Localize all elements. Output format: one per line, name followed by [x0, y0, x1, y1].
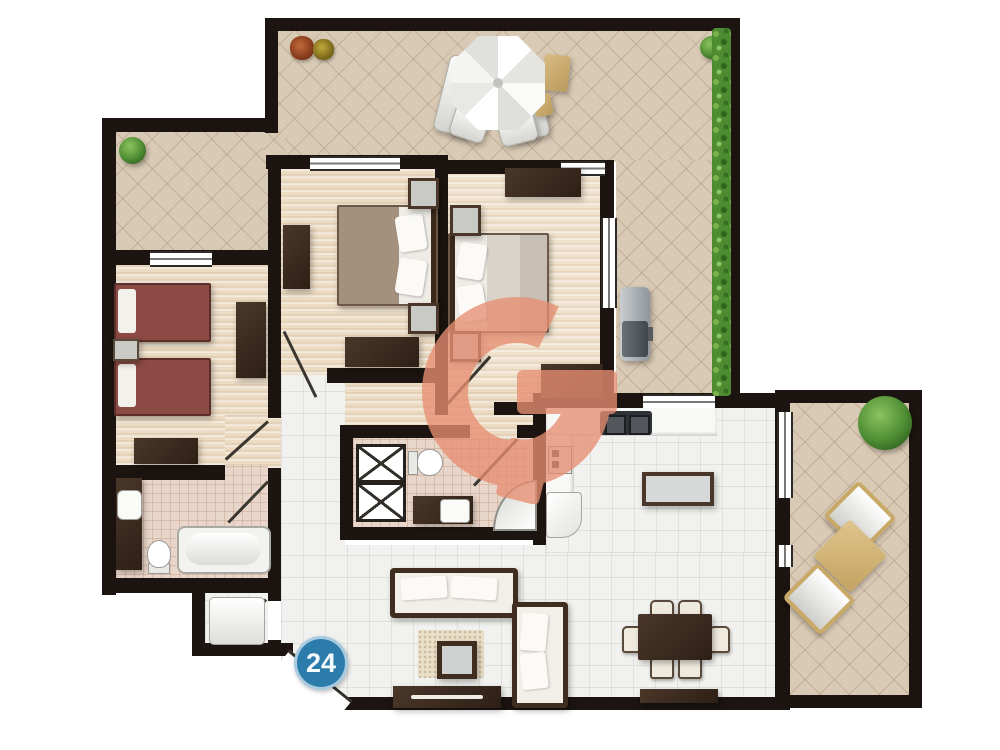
coffee-table-icon [437, 641, 477, 679]
burner-icon [629, 415, 650, 435]
wall-closet-right-top [268, 593, 281, 601]
wall-closet-right-bottom [268, 640, 281, 656]
sideboard-icon [640, 689, 718, 703]
wardrobe-icon [505, 168, 581, 197]
sofa-cushion-icon [450, 575, 497, 600]
bathtub-icon [177, 526, 271, 574]
dresser-icon [345, 337, 419, 367]
umbrella-icon [451, 36, 545, 130]
window-bedroom1 [310, 156, 400, 171]
pillow-icon [394, 213, 427, 253]
lobby-floor [225, 415, 281, 468]
wall-v1-upper [268, 157, 281, 418]
toilet-bowl-icon [147, 540, 171, 568]
nightstand-icon [450, 205, 481, 236]
unit-number-badge: 24 [294, 636, 348, 690]
pillow-icon [118, 364, 136, 407]
double-bed-icon [337, 205, 438, 306]
sofa-icon [390, 568, 518, 618]
bbq-body-icon [622, 321, 648, 357]
single-bed-icon [114, 358, 211, 416]
wall-left-terrace-top [102, 118, 278, 132]
nightstand-icon [408, 178, 439, 209]
window-living-right-2 [777, 545, 793, 567]
wall-terrace4-right [909, 390, 922, 708]
sofa-icon [512, 602, 568, 708]
window-living-right-1 [777, 412, 793, 498]
big-plant-icon [858, 396, 912, 450]
bbq-grill-icon [620, 287, 650, 361]
wall-top-terrace-left [265, 18, 278, 133]
wardrobe-icon [283, 225, 310, 289]
wall-terrace4-bottom [790, 695, 922, 708]
wall-bath2-left [340, 425, 353, 540]
headboard-icon [431, 207, 436, 304]
kitchen-island-icon [642, 472, 714, 506]
hedge-icon [712, 28, 731, 396]
wall-bedroom1-bottom [327, 368, 435, 383]
bathtub-basin-icon [185, 533, 261, 565]
shower-icon [356, 444, 406, 483]
floor-plan: 24 [0, 0, 1000, 750]
chair-icon [709, 626, 730, 653]
sink-icon [117, 490, 142, 520]
wardrobe-icon [236, 302, 266, 378]
sofa-cushion-icon [519, 652, 549, 691]
bbq-handle-icon [648, 327, 653, 341]
dresser-icon [134, 438, 198, 464]
pillow-icon [455, 241, 487, 281]
nightstand-icon [113, 339, 139, 361]
washing-machine-icon [209, 597, 265, 645]
pillow-icon [394, 257, 427, 297]
potted-plant-red-icon [290, 36, 314, 60]
sofa-cushion-icon [400, 575, 447, 600]
tv-stand-icon [393, 686, 501, 708]
umbrella-pole-icon [493, 78, 503, 88]
tv-stand-handle-icon [411, 695, 483, 699]
left-terrace-plant-icon [119, 137, 146, 164]
wall-top [265, 18, 740, 31]
wall-bath1-bottom [102, 578, 281, 593]
pillow-icon [118, 289, 136, 333]
watermark-g-icon [420, 292, 620, 504]
potted-plant-yellow-icon [313, 39, 334, 60]
side-table-icon [541, 54, 571, 93]
dining-table-icon [638, 614, 712, 660]
shower-icon [356, 482, 406, 522]
window-twin-bedroom [150, 251, 212, 267]
sofa-cushion-icon [519, 612, 548, 652]
single-bed-icon [114, 283, 211, 342]
unit-number-label: 24 [306, 648, 336, 679]
toilet-icon [146, 540, 170, 574]
